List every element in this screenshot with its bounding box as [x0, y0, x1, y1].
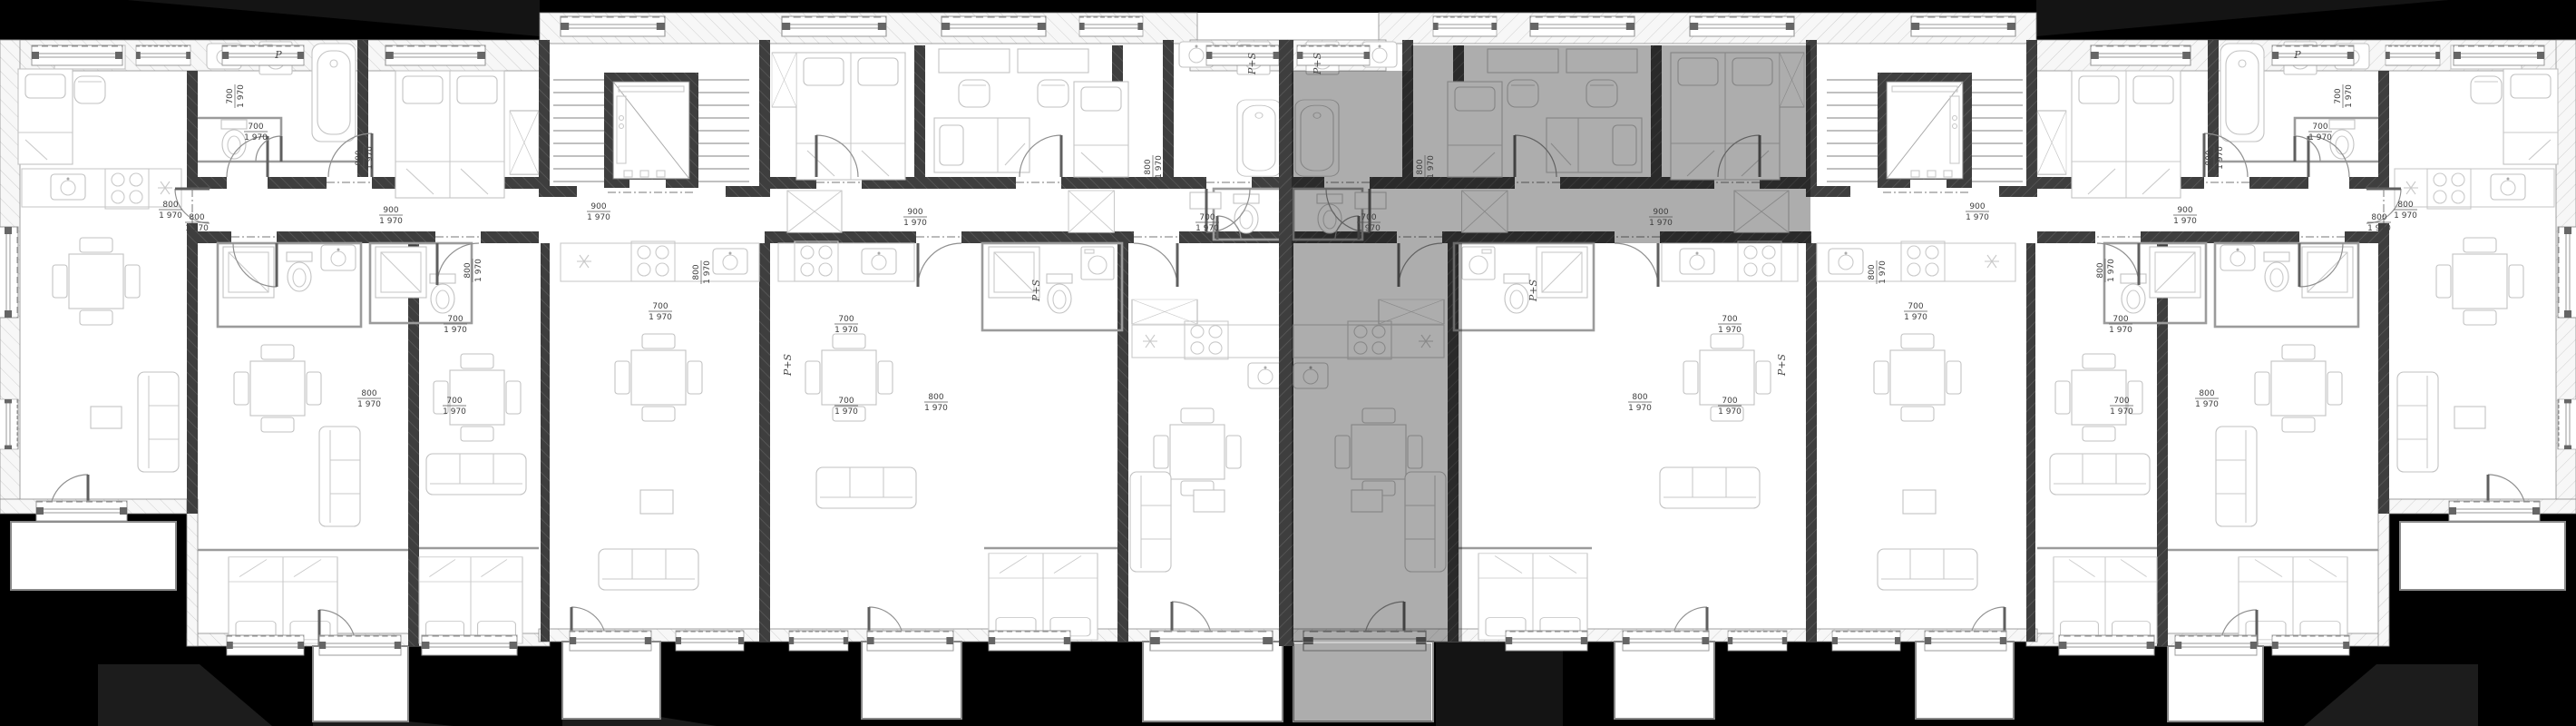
appliance-label: P+S	[1527, 279, 1539, 302]
svg-text:1 970: 1 970	[703, 260, 712, 284]
svg-text:700: 700	[1199, 213, 1215, 222]
svg-text:700: 700	[2113, 397, 2129, 406]
svg-text:800: 800	[2397, 201, 2413, 210]
building-left-half	[0, 13, 1297, 721]
svg-text:700: 700	[1722, 397, 1737, 406]
svg-text:700: 700	[2334, 88, 2343, 103]
svg-text:700: 700	[838, 397, 854, 406]
svg-text:900: 900	[590, 202, 606, 211]
svg-text:700: 700	[2113, 315, 2128, 324]
appliance-label: P+S	[1312, 52, 1323, 75]
svg-text:900: 900	[1653, 208, 1668, 217]
svg-text:800: 800	[463, 262, 473, 278]
highlighted-apartment-balcony[interactable]	[1293, 643, 1431, 721]
svg-text:1 970: 1 970	[1628, 404, 1652, 413]
svg-text:1 970: 1 970	[2173, 217, 2197, 226]
svg-text:1 970: 1 970	[1357, 224, 1381, 233]
svg-text:800: 800	[692, 264, 701, 280]
svg-text:1 970: 1 970	[357, 400, 381, 409]
svg-text:1 970: 1 970	[2110, 407, 2133, 417]
svg-text:700: 700	[652, 302, 668, 311]
svg-text:1 970: 1 970	[443, 407, 466, 417]
svg-text:700: 700	[226, 88, 235, 103]
svg-text:1 970: 1 970	[2107, 259, 2116, 282]
svg-text:800: 800	[162, 201, 178, 210]
svg-text:700: 700	[446, 397, 462, 406]
svg-text:800: 800	[2199, 389, 2214, 398]
svg-text:1 970: 1 970	[366, 146, 375, 170]
appliance-label: P+S	[1030, 279, 1042, 302]
svg-text:1 970: 1 970	[649, 313, 672, 322]
svg-text:1 970: 1 970	[834, 407, 858, 417]
svg-text:1 970: 1 970	[1195, 224, 1219, 233]
svg-text:1 970: 1 970	[2195, 400, 2219, 409]
svg-text:1 970: 1 970	[924, 404, 948, 413]
svg-text:800: 800	[1868, 264, 1877, 280]
appliance-label: P+S	[1246, 52, 1258, 75]
svg-text:800: 800	[1416, 159, 1425, 174]
floor-plan-canvas: 8001 9707001 9707001 9708001 9709001 970…	[0, 0, 2576, 726]
svg-text:700: 700	[248, 123, 263, 132]
svg-text:700: 700	[447, 315, 463, 324]
svg-text:1 970: 1 970	[587, 213, 610, 222]
svg-text:1 970: 1 970	[1878, 260, 1888, 284]
svg-text:1 970: 1 970	[444, 326, 467, 335]
appliance-label: P+S	[782, 353, 794, 377]
appliance-label: P+S	[1776, 353, 1788, 377]
svg-text:700: 700	[2312, 123, 2327, 132]
svg-text:700: 700	[1908, 302, 1923, 311]
svg-text:700: 700	[838, 315, 854, 324]
svg-text:1 970: 1 970	[2308, 133, 2332, 142]
svg-text:1 970: 1 970	[1427, 155, 1436, 179]
svg-text:900: 900	[1969, 202, 1985, 211]
svg-text:900: 900	[2177, 206, 2192, 215]
svg-text:1 970: 1 970	[159, 211, 182, 221]
floorplan-svg: 8001 9707001 9707001 9708001 9709001 970…	[0, 0, 2576, 726]
svg-text:1 970: 1 970	[1155, 155, 1164, 179]
svg-text:1 970: 1 970	[1718, 407, 1742, 417]
svg-text:1 970: 1 970	[379, 217, 403, 226]
svg-text:1 970: 1 970	[2367, 224, 2391, 233]
svg-text:1 970: 1 970	[1718, 326, 1742, 335]
svg-text:800: 800	[1144, 159, 1153, 174]
svg-text:800: 800	[355, 150, 364, 165]
svg-text:1 970: 1 970	[2394, 211, 2417, 221]
svg-text:700: 700	[1361, 213, 1376, 222]
svg-text:1 970: 1 970	[474, 259, 483, 282]
svg-text:1 970: 1 970	[185, 224, 209, 233]
svg-text:1 970: 1 970	[2345, 84, 2354, 108]
svg-text:800: 800	[1632, 393, 1647, 402]
svg-text:1 970: 1 970	[834, 326, 858, 335]
svg-text:800: 800	[189, 213, 204, 222]
svg-text:1 970: 1 970	[244, 133, 268, 142]
svg-text:1 970: 1 970	[1649, 219, 1673, 228]
svg-text:900: 900	[383, 206, 398, 215]
svg-text:1 970: 1 970	[2216, 146, 2225, 170]
svg-text:800: 800	[928, 393, 943, 402]
appliance-label: P	[2293, 49, 2301, 61]
svg-text:800: 800	[2096, 262, 2105, 278]
svg-text:1 970: 1 970	[237, 84, 246, 108]
svg-text:1 970: 1 970	[1966, 213, 1989, 222]
appliance-label: P	[274, 49, 282, 61]
svg-text:800: 800	[2205, 150, 2214, 165]
svg-text:900: 900	[907, 208, 922, 217]
svg-text:1 970: 1 970	[2109, 326, 2132, 335]
svg-text:700: 700	[1722, 315, 1737, 324]
svg-text:1 970: 1 970	[903, 219, 927, 228]
svg-text:800: 800	[2371, 213, 2386, 222]
svg-text:800: 800	[361, 389, 376, 398]
svg-text:1 970: 1 970	[1904, 313, 1927, 322]
